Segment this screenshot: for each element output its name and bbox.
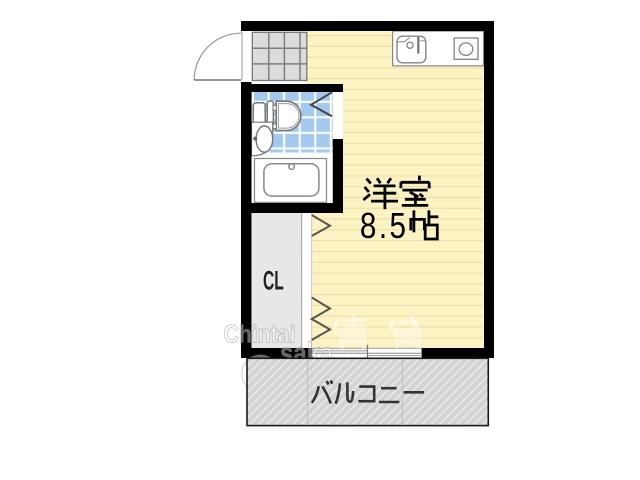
svg-text:CL: CL xyxy=(263,265,284,296)
svg-text:8.5: 8.5 xyxy=(360,206,409,247)
